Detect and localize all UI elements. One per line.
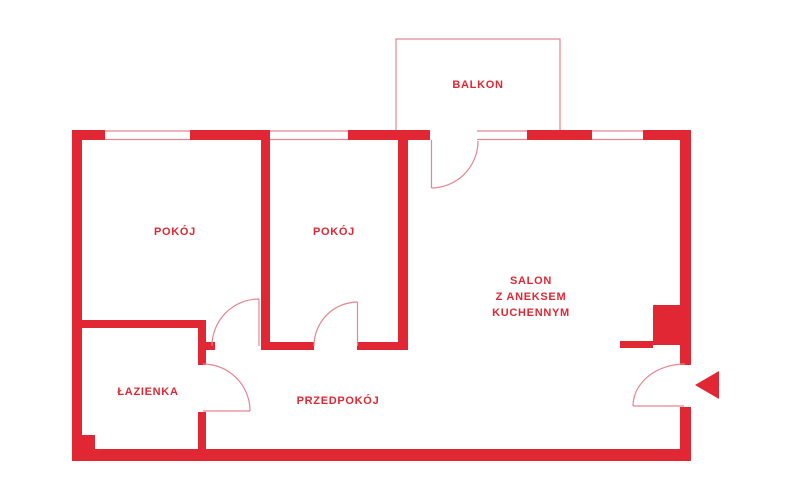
top-wall-segment-4 bbox=[527, 130, 592, 140]
salon-label-line1: SALON bbox=[510, 275, 552, 287]
top-wall-segment-3 bbox=[348, 130, 430, 140]
pokoj-left-label: POKÓJ bbox=[154, 225, 196, 238]
bathroom-right-wall-upper bbox=[198, 320, 206, 365]
outer-walls bbox=[72, 130, 691, 461]
hall-wall-middle bbox=[270, 342, 314, 350]
entrance-arrow-icon bbox=[695, 371, 719, 399]
right-wall-upper bbox=[680, 130, 691, 365]
bathroom-corner-pillar bbox=[82, 435, 95, 449]
window-pokoj-left bbox=[105, 131, 190, 140]
door-arc bbox=[432, 141, 479, 188]
door-arc bbox=[633, 364, 685, 406]
doors bbox=[203, 140, 685, 411]
door-arc bbox=[203, 364, 250, 411]
room-labels: BALKON POKÓJ POKÓJ SALON Z ANEKSEM KUCHE… bbox=[117, 79, 570, 407]
salon-label-line2: Z ANEKSEM bbox=[496, 291, 567, 303]
duct-block bbox=[653, 305, 680, 345]
bathroom-right-wall-lower bbox=[198, 412, 206, 449]
window-salon-balcony bbox=[477, 131, 527, 140]
door-arc bbox=[314, 302, 358, 346]
pokoj-middle-door bbox=[314, 302, 358, 346]
window-pokoj-middle bbox=[270, 131, 348, 140]
duct-wall-stub bbox=[620, 341, 653, 348]
salon-label-line3: KUCHENNYM bbox=[492, 307, 570, 319]
window-pane bbox=[270, 131, 348, 139]
bathroom-label: ŁAZIENKA bbox=[117, 386, 178, 398]
left-wall bbox=[72, 130, 82, 461]
right-wall-lower bbox=[680, 407, 691, 461]
balcony-door bbox=[432, 140, 479, 188]
window-pane bbox=[477, 131, 527, 139]
floor-plan: BALKON POKÓJ POKÓJ SALON Z ANEKSEM KUCHE… bbox=[0, 0, 790, 500]
pokoj-middle-right-wall bbox=[398, 140, 408, 350]
top-wall-segment-2 bbox=[190, 130, 270, 140]
top-wall-segment-1 bbox=[72, 130, 105, 140]
hallway-label: PRZEDPOKÓJ bbox=[297, 394, 380, 407]
entrance-door bbox=[633, 364, 685, 406]
balcony-label: BALKON bbox=[452, 79, 503, 91]
interior-walls bbox=[82, 140, 680, 449]
hall-wall-stub-left bbox=[206, 342, 215, 350]
bottom-wall bbox=[72, 449, 691, 461]
top-wall-segment-5 bbox=[643, 130, 691, 140]
window-pane bbox=[592, 131, 643, 139]
floor-plan-drawing: BALKON POKÓJ POKÓJ SALON Z ANEKSEM KUCHE… bbox=[0, 0, 790, 500]
rooms-divider-wall bbox=[261, 140, 270, 350]
door-arc bbox=[212, 299, 259, 346]
pokoj-middle-label: POKÓJ bbox=[313, 225, 355, 238]
bathroom-door bbox=[203, 364, 250, 411]
window-salon-right bbox=[592, 131, 643, 140]
pokoj-left-door bbox=[212, 299, 259, 346]
window-pane bbox=[105, 131, 190, 139]
bathroom-top-wall bbox=[82, 320, 206, 328]
